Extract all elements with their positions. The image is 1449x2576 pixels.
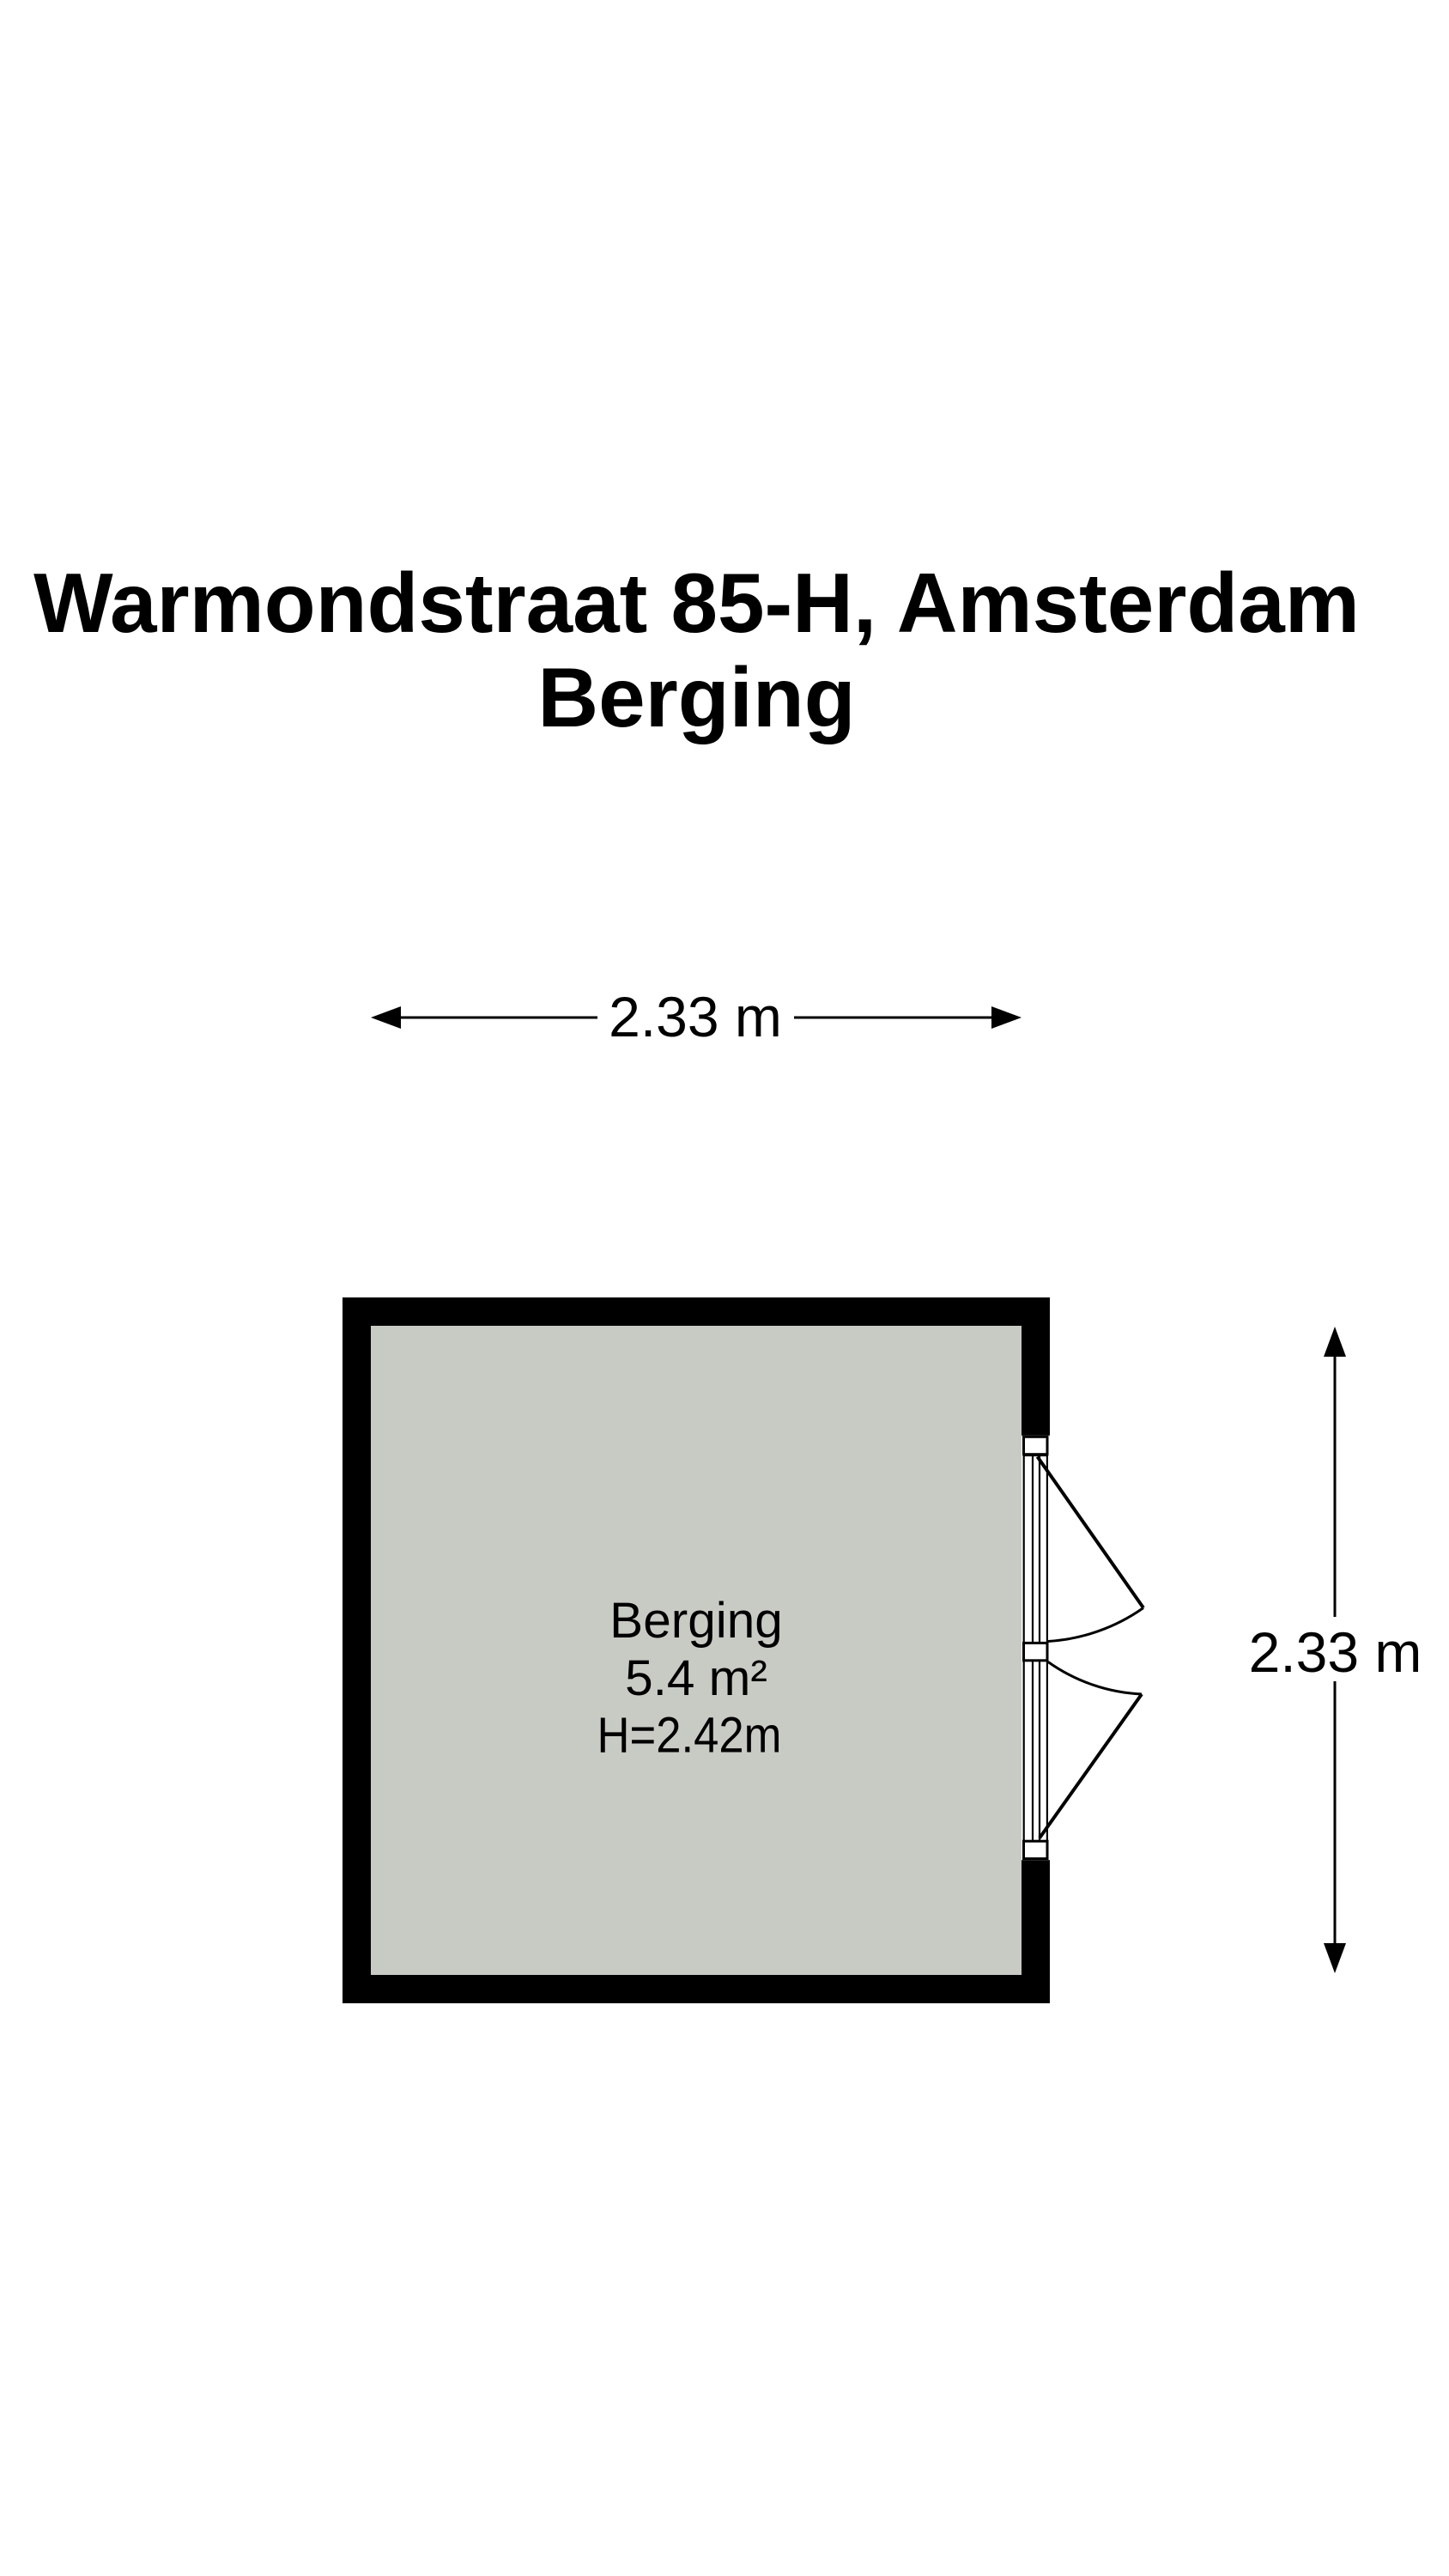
svg-text:2.33 m: 2.33 m xyxy=(609,985,782,1048)
svg-text:2.33 m: 2.33 m xyxy=(1249,1620,1422,1684)
svg-text:Berging: Berging xyxy=(537,650,855,744)
svg-text:H=2.42m: H=2.42m xyxy=(597,1708,782,1764)
svg-text:Warmondstraat 85-H, Amsterdam: Warmondstraat 85-H, Amsterdam xyxy=(33,556,1360,650)
svg-text:Berging: Berging xyxy=(609,1593,783,1649)
svg-text:5.4 m²: 5.4 m² xyxy=(625,1650,767,1706)
